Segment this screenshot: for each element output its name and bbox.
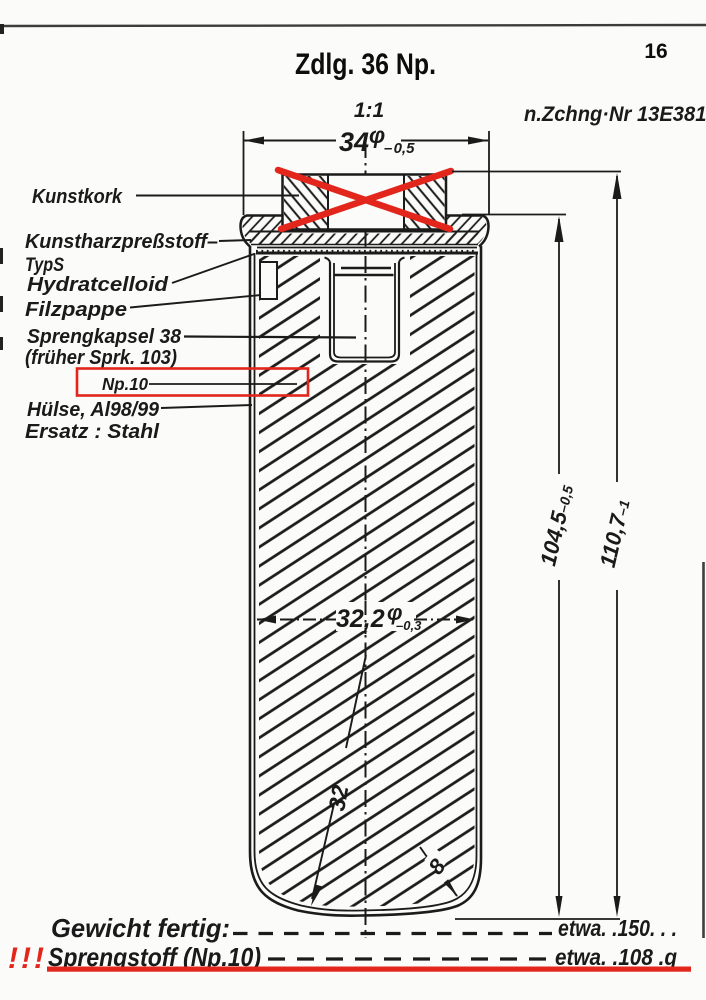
svg-text:110,7–1: 110,7–1 <box>595 497 635 570</box>
svg-text:Filzpappe: Filzpappe <box>25 299 127 321</box>
svg-text:32,2: 32,2 <box>336 605 385 633</box>
svg-text:!!!: !!! <box>8 942 47 975</box>
svg-text:1:1: 1:1 <box>354 99 384 122</box>
svg-text:16: 16 <box>644 40 667 63</box>
svg-text:Kunstharzpreßstoff–: Kunstharzpreßstoff– <box>25 231 218 253</box>
svg-text:Gewicht fertig:: Gewicht fertig: <box>51 913 230 943</box>
svg-text:Hydratcelloid: Hydratcelloid <box>27 274 169 296</box>
svg-text:Zdlg. 36 Np.: Zdlg. 36 Np. <box>295 48 436 81</box>
svg-text:32: 32 <box>323 783 353 813</box>
svg-text:n.Zchng·Nr 13E381.: n.Zchng·Nr 13E381. <box>524 103 706 126</box>
svg-text:– 0,5: – 0,5 <box>384 140 415 157</box>
svg-text:104,5–0,5: 104,5–0,5 <box>535 482 578 568</box>
svg-text:etwa. .108 .g: etwa. .108 .g <box>555 944 677 970</box>
svg-text:(früher Sprk. 103): (früher Sprk. 103) <box>25 347 177 369</box>
svg-text:Np.10: Np.10 <box>102 374 148 394</box>
svg-text:Sprengkapsel 38: Sprengkapsel 38 <box>27 326 182 348</box>
svg-text:Hülse, Al98/99: Hülse, Al98/99 <box>27 399 160 421</box>
svg-text:etwa. .150. . .: etwa. .150. . . <box>558 915 677 941</box>
svg-text:TypS: TypS <box>25 255 64 276</box>
svg-text:–0,3: –0,3 <box>396 618 422 633</box>
svg-text:Kunstkork: Kunstkork <box>32 186 123 208</box>
svg-text:Ersatz : Stahl: Ersatz : Stahl <box>25 421 159 443</box>
svg-text:φ: φ <box>369 122 385 148</box>
